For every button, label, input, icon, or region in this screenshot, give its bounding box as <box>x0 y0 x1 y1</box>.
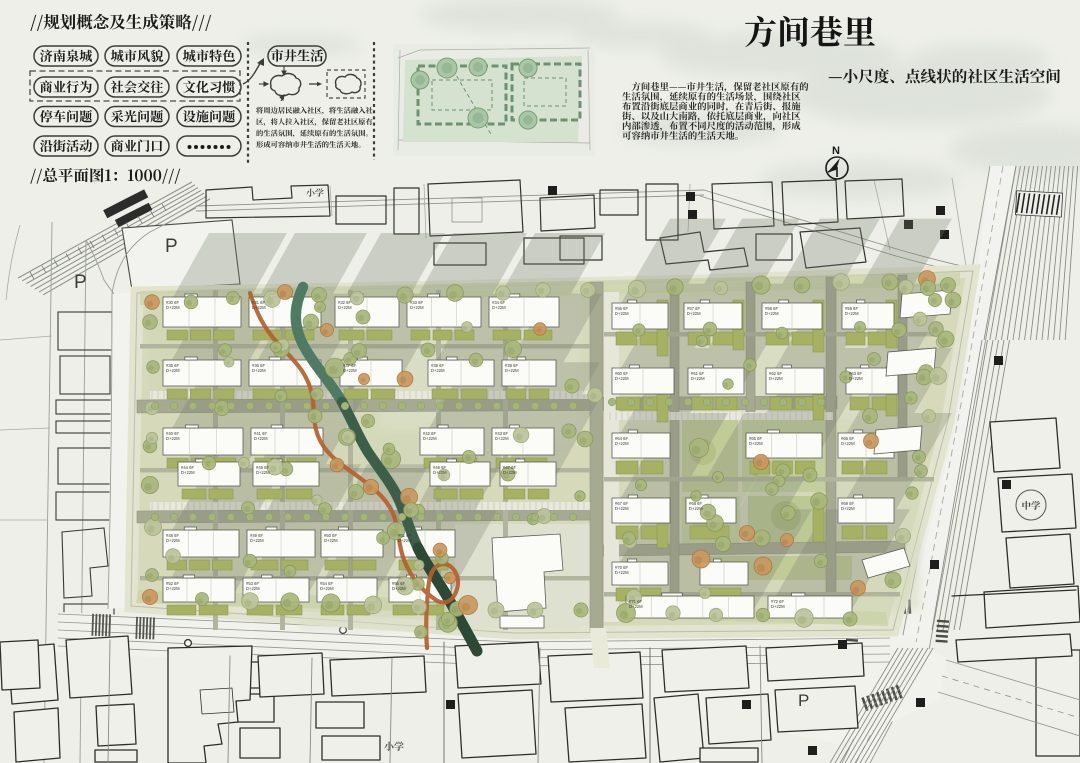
svg-text:D+22M: D+22M <box>615 376 629 381</box>
svg-text:D+22M: D+22M <box>423 436 437 441</box>
svg-text:D+22M: D+22M <box>433 470 447 475</box>
svg-text:P: P <box>798 691 809 710</box>
svg-text:D+22M: D+22M <box>252 305 266 310</box>
svg-text:P: P <box>74 272 87 293</box>
svg-text:D+22M: D+22M <box>629 604 643 609</box>
svg-text:D+22M: D+22M <box>503 470 517 475</box>
svg-text:D+22M: D+22M <box>769 376 783 381</box>
svg-text:D+22M: D+22M <box>615 570 629 575</box>
svg-text:D+22M: D+22M <box>615 441 629 446</box>
svg-text:D+22M: D+22M <box>256 470 270 475</box>
svg-text:N: N <box>832 145 840 157</box>
svg-text:D+22M: D+22M <box>338 305 352 310</box>
svg-text:D+22M: D+22M <box>841 506 855 511</box>
svg-text:D+22M: D+22M <box>687 311 701 316</box>
svg-text:D+22M: D+22M <box>431 368 445 373</box>
svg-text:D+22M: D+22M <box>392 586 406 591</box>
svg-text:D+22M: D+22M <box>691 376 705 381</box>
svg-text:D+22M: D+22M <box>410 305 424 310</box>
svg-text:D+22M: D+22M <box>166 538 180 543</box>
svg-text:D+22M: D+22M <box>254 436 268 441</box>
svg-text:D+22M: D+22M <box>166 305 180 310</box>
svg-text:D+22M: D+22M <box>841 441 855 446</box>
svg-text:D+22M: D+22M <box>849 376 863 381</box>
svg-text:D+22M: D+22M <box>492 305 506 310</box>
svg-text:D+22M: D+22M <box>166 436 180 441</box>
svg-text:D+22M: D+22M <box>166 586 180 591</box>
svg-text:D+22M: D+22M <box>398 538 412 543</box>
svg-text:D+22M: D+22M <box>495 436 509 441</box>
svg-text:D+22M: D+22M <box>181 470 195 475</box>
svg-text:D+22M: D+22M <box>615 311 629 316</box>
svg-text:D+22M: D+22M <box>771 604 785 609</box>
svg-text:D+22M: D+22M <box>166 368 180 373</box>
svg-text:D+22M: D+22M <box>505 368 519 373</box>
svg-text:P: P <box>165 236 178 257</box>
svg-text:D+22M: D+22M <box>615 506 629 511</box>
svg-text:D+22M: D+22M <box>689 506 703 511</box>
svg-text:D+22M: D+22M <box>343 368 357 373</box>
svg-text:D+22M: D+22M <box>845 311 859 316</box>
svg-text:D+22M: D+22M <box>252 368 266 373</box>
svg-text:D+22M: D+22M <box>324 538 338 543</box>
svg-text:D+22M: D+22M <box>250 538 264 543</box>
svg-text:D+22M: D+22M <box>320 586 334 591</box>
svg-text:D+22M: D+22M <box>246 586 260 591</box>
svg-text:D+22M: D+22M <box>765 311 779 316</box>
svg-text:D+22M: D+22M <box>749 441 763 446</box>
